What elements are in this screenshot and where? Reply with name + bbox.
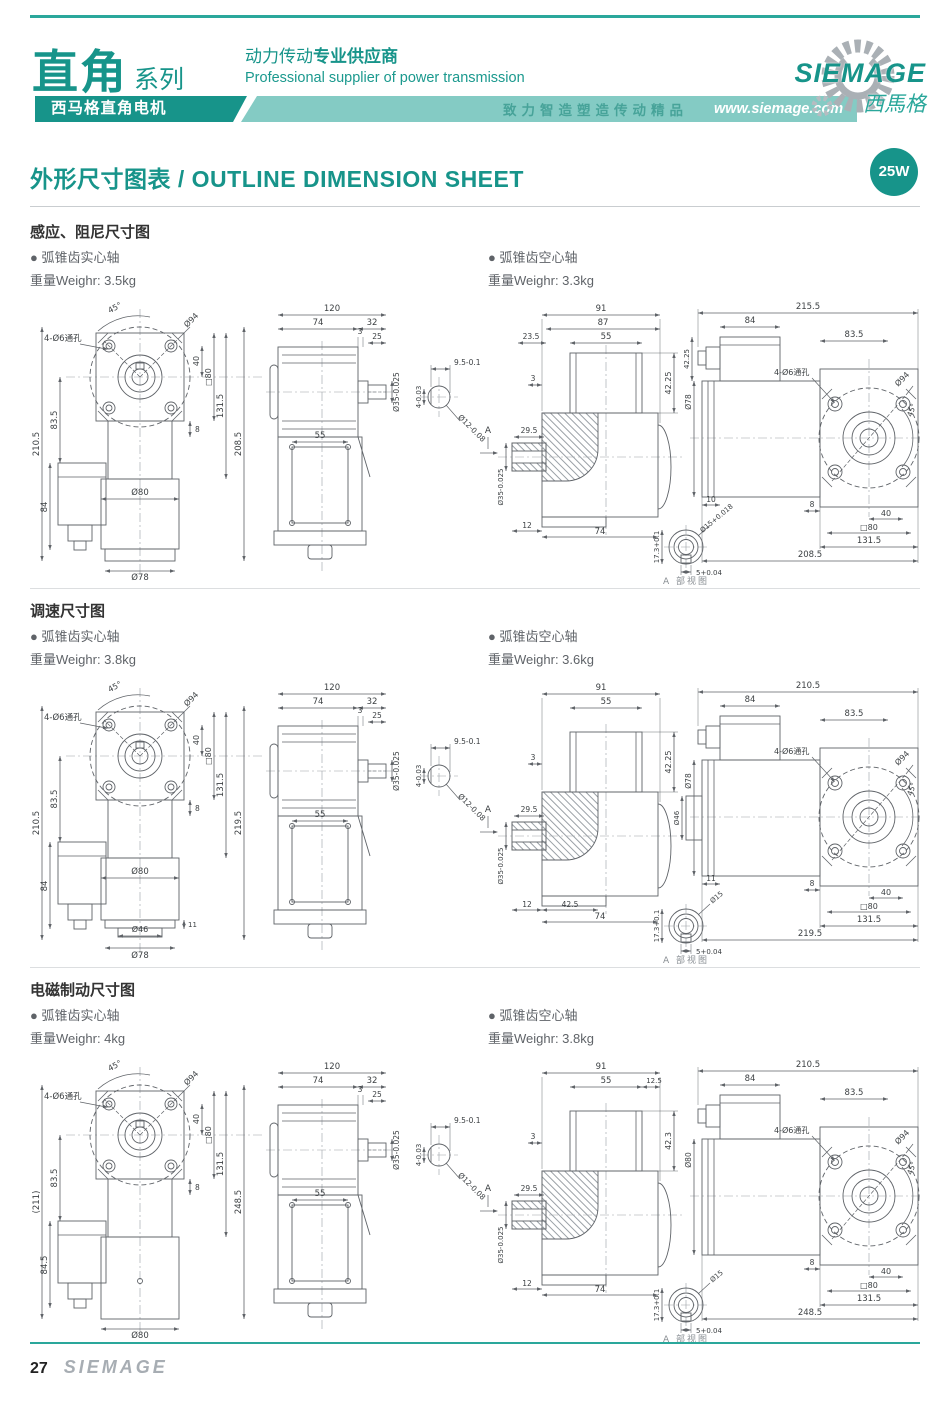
- dim-label: 208.5: [234, 432, 244, 456]
- dim-label: 131.5: [857, 915, 881, 925]
- tagline-en: Professional supplier of power transmiss…: [245, 70, 525, 86]
- variant-label: ● 弧锥齿实心轴: [30, 626, 450, 645]
- variant-weight: 重量Weighr: 3.8kg: [488, 1028, 908, 1047]
- dim-label: A: [485, 426, 492, 436]
- power-badge: 25W: [870, 148, 918, 196]
- dim-label: 74: [595, 527, 606, 537]
- dim-label: 45°: [905, 1160, 918, 1176]
- section-title: 调速尺寸图: [30, 600, 920, 621]
- dim-label: Ø94: [893, 1128, 912, 1147]
- variant-weight: 重量Weighr: 3.6kg: [488, 649, 908, 668]
- dim-label: 219.5: [234, 811, 244, 835]
- front-view: 210.583.584131.5219.540□80845°Ø944-Ø6通孔Ø…: [32, 679, 264, 961]
- dim-label: Ø35-0.025: [392, 1130, 401, 1170]
- variant-weight: 重量Weighr: 3.5kg: [30, 270, 450, 289]
- dim-label: 8: [810, 500, 815, 509]
- dim-label: 29.5: [521, 1184, 538, 1193]
- dim-label: 5+0.04: [696, 1327, 722, 1335]
- shaft-key-detail: 9.5-0.14-0.03Ø12-0.08: [415, 358, 487, 444]
- hollow-section-view: A915512.5342.329.5Ø35-0.0251274: [480, 1062, 684, 1297]
- dim-label: 87: [598, 318, 609, 328]
- dim-label: 84.5: [40, 1256, 50, 1275]
- dimension-drawing-row: 210.583.584131.5219.540□80845°Ø944-Ø6通孔Ø…: [30, 664, 920, 964]
- dim-label: 83.5: [845, 330, 864, 340]
- variant-hollow-shaft: ● 弧锥齿空心轴 重量Weighr: 3.6kg: [488, 626, 908, 668]
- dim-label: □80: [860, 523, 878, 532]
- dim-label: □80: [204, 368, 213, 386]
- shaft-end-detail-view: 17.3+0.1Ø155+0.04A 部视图: [653, 890, 725, 964]
- dim-label: Ø15: [709, 1269, 725, 1284]
- dim-label: A: [485, 1184, 492, 1194]
- dim-label: 25: [372, 1090, 382, 1099]
- dim-label: 12: [522, 900, 532, 909]
- dim-label: 40: [881, 1267, 891, 1276]
- dim-label: Ø46: [673, 810, 681, 825]
- dim-label: (211): [32, 1191, 42, 1214]
- dim-label: Ø94: [182, 690, 201, 709]
- footer-brand: SIEMAGE: [64, 1357, 168, 1378]
- dim-label: 131.5: [216, 1152, 226, 1176]
- dim-label: Ø35-0.025: [497, 469, 505, 506]
- dim-label: 25: [372, 332, 382, 341]
- dim-label: 40: [192, 356, 201, 366]
- series-brand: 直角系列: [32, 36, 184, 102]
- dim-label: 25: [372, 711, 382, 720]
- dim-label: 12: [522, 1279, 532, 1288]
- dim-label: 4-Ø6通孔: [774, 1125, 809, 1135]
- dim-label: 83.5: [50, 411, 60, 430]
- dim-label: 3: [358, 1085, 363, 1094]
- dim-label: 8: [195, 425, 200, 434]
- dim-label: 210.5: [796, 1060, 820, 1070]
- top-rule: [30, 15, 920, 18]
- dim-label: 17.3+0.1: [653, 1289, 661, 1322]
- banner-slogan: 致力智造塑造传动精品: [503, 99, 688, 119]
- sections: 感应、阻尼尺寸图 ● 弧锥齿实心轴 重量Weighr: 3.5kg ● 弧锥齿空…: [30, 210, 920, 1343]
- dim-label: 3: [531, 374, 536, 383]
- variant-label: ● 弧锥齿空心轴: [488, 626, 908, 645]
- dim-label: 84: [745, 695, 756, 705]
- dim-label: 3: [531, 753, 536, 762]
- tagline-cn: 动力传动专业供应商: [245, 42, 525, 67]
- dim-label: Ø94: [182, 311, 201, 330]
- dim-label: 10: [706, 495, 716, 504]
- dim-label: 3: [358, 327, 363, 336]
- dim-label: 4-0.03: [415, 386, 423, 409]
- dim-label: 40: [192, 735, 201, 745]
- variant-label: ● 弧锥齿空心轴: [488, 1005, 908, 1024]
- front-view: 210.583.584131.5208.540□80845°Ø944-Ø6通孔Ø…: [32, 300, 264, 583]
- dim-label: 4-Ø6通孔: [44, 712, 82, 723]
- variant-solid-shaft: ● 弧锥齿实心轴 重量Weighr: 4kg: [30, 1005, 450, 1047]
- dim-label: 74: [595, 912, 606, 922]
- dim-label: Ø12-0.08: [456, 1171, 487, 1202]
- dim-label: 131.5: [216, 773, 226, 797]
- dim-label: 17.3+0.1: [653, 910, 661, 943]
- dim-label: 11: [188, 921, 197, 929]
- dim-label: 8: [810, 1258, 815, 1267]
- dim-label: 8: [195, 1183, 200, 1192]
- dim-label: 45°: [905, 402, 918, 418]
- dim-label: 9.5-0.1: [454, 737, 481, 746]
- dim-label: 42.5: [562, 900, 579, 909]
- dim-label: 40: [881, 888, 891, 897]
- dim-label: 120: [324, 683, 340, 693]
- variant-solid-shaft: ● 弧锥齿实心轴 重量Weighr: 3.5kg: [30, 247, 450, 289]
- dim-label: Ø80: [131, 1330, 149, 1341]
- dim-label: 74: [313, 318, 324, 328]
- dim-label: Ø46: [132, 924, 148, 934]
- logo-cn: 西馬格: [863, 88, 926, 118]
- page-number: 27: [30, 1360, 48, 1378]
- dim-label: 83.5: [845, 709, 864, 719]
- dim-label: 208.5: [798, 550, 822, 560]
- company-logo: SIEMAGE 西馬格: [784, 32, 926, 132]
- dim-label: 42.25: [683, 349, 691, 369]
- variant-label: ● 弧锥齿空心轴: [488, 247, 908, 266]
- dim-label: Ø15: [709, 890, 725, 905]
- dim-label: 84: [40, 502, 50, 513]
- dim-label: Ø78: [131, 572, 149, 583]
- variant-weight: 重量Weighr: 3.8kg: [30, 649, 450, 668]
- dim-label: 3: [358, 706, 363, 715]
- motor-side-view: 45°Ø944-Ø6通孔Ø78Ø46210.58483.511840□80131…: [673, 681, 920, 942]
- dim-label: 12: [522, 521, 532, 530]
- motor-side-view: 45°Ø944-Ø6通孔Ø80210.58483.5840□80131.5248…: [684, 1060, 920, 1321]
- tagline-cn-normal: 动力传动: [245, 47, 313, 66]
- motor-side-view: 45°Ø944-Ø6通孔Ø7842.25215.58483.510840□801…: [683, 302, 920, 563]
- dim-label: 74: [313, 697, 324, 707]
- dim-label: 131.5: [857, 1294, 881, 1304]
- brand-banner: 西马格直角电机 致力智造塑造传动精品 www.siemage.com: [35, 96, 857, 122]
- variant-headers: ● 弧锥齿实心轴 重量Weighr: 3.5kg ● 弧锥齿空心轴 重量Weig…: [30, 247, 920, 285]
- dim-label: Ø78: [684, 773, 693, 789]
- variant-hollow-shaft: ● 弧锥齿空心轴 重量Weighr: 3.8kg: [488, 1005, 908, 1047]
- banner-strip: 致力智造塑造传动精品 www.siemage.com: [241, 96, 857, 122]
- dim-label: □80: [860, 1281, 878, 1290]
- variant-hollow-shaft: ● 弧锥齿空心轴 重量Weighr: 3.3kg: [488, 247, 908, 289]
- dim-label: Ø15+0.018: [699, 502, 735, 534]
- dim-label: 45°: [106, 1058, 123, 1073]
- dim-label: 83.5: [50, 790, 60, 809]
- dim-label: Ø12-0.08: [456, 413, 487, 444]
- variant-label: ● 弧锥齿实心轴: [30, 1005, 450, 1024]
- variant-headers: ● 弧锥齿实心轴 重量Weighr: 3.8kg ● 弧锥齿空心轴 重量Weig…: [30, 626, 920, 664]
- shaft-key-detail: 9.5-0.14-0.03Ø12-0.08: [415, 1116, 487, 1202]
- dim-label: 248.5: [234, 1190, 244, 1214]
- hollow-section-view: A9155342.2529.5Ø35-0.0251242.574: [480, 683, 684, 924]
- footer: 27 SIEMAGE: [30, 1342, 920, 1378]
- dim-label: 29.5: [521, 805, 538, 814]
- dim-label: 8: [810, 879, 815, 888]
- dim-label: 55: [315, 431, 326, 441]
- dim-label: 42.3: [664, 1132, 673, 1150]
- section-title: 电磁制动尺寸图: [30, 979, 920, 1000]
- dim-label: □80: [860, 902, 878, 911]
- banner-product-label: 西马格直角电机: [35, 96, 255, 122]
- shaft-end-detail-view: 17.3+0.1Ø15+0.0185+0.04A 部视图: [653, 502, 735, 585]
- dim-label: 248.5: [798, 1308, 822, 1318]
- dim-label: 32: [367, 697, 378, 707]
- dim-label: 3: [531, 1132, 536, 1141]
- dim-label: 131.5: [216, 394, 226, 418]
- dim-label: Ø35-0.025: [497, 1227, 505, 1264]
- dim-label: 83.5: [845, 1088, 864, 1098]
- dim-label: 55: [601, 1076, 612, 1086]
- section-induction: 感应、阻尼尺寸图 ● 弧锥齿实心轴 重量Weighr: 3.5kg ● 弧锥齿空…: [30, 210, 920, 585]
- logo-wordmark: SIEMAGE: [794, 58, 926, 89]
- dim-label: 23.5: [523, 332, 540, 341]
- dim-label: 55: [601, 697, 612, 707]
- dim-label: Ø12-0.08: [456, 792, 487, 823]
- dim-label: 215.5: [796, 302, 820, 312]
- variant-weight: 重量Weighr: 4kg: [30, 1028, 450, 1047]
- dim-label: 45°: [106, 679, 123, 694]
- variant-headers: ● 弧锥齿实心轴 重量Weighr: 4kg ● 弧锥齿空心轴 重量Weighr…: [30, 1005, 920, 1043]
- dim-label: 55: [315, 1189, 326, 1199]
- dim-label: 83.5: [50, 1169, 60, 1188]
- dim-label: 8: [195, 804, 200, 813]
- dim-label: 40: [881, 509, 891, 518]
- dim-label: Ø78: [131, 950, 149, 961]
- dim-label: 4-0.03: [415, 765, 423, 788]
- dim-label: □80: [204, 747, 213, 765]
- dim-label: Ø35-0.025: [392, 372, 401, 412]
- page-title: 外形尺寸图表 / OUTLINE DIMENSION SHEET: [30, 148, 920, 194]
- dim-label: 84: [745, 1074, 756, 1084]
- section-speed-regulation: 调速尺寸图 ● 弧锥齿实心轴 重量Weighr: 3.8kg ● 弧锥齿空心轴 …: [30, 588, 920, 964]
- variant-weight: 重量Weighr: 3.3kg: [488, 270, 908, 289]
- dim-label: 4-Ø6通孔: [774, 367, 809, 377]
- title-divider: [30, 206, 920, 207]
- dim-label: 84: [40, 881, 50, 892]
- dim-label: 210.5: [32, 432, 42, 456]
- shaft-key-detail: 9.5-0.14-0.03Ø12-0.08: [415, 737, 487, 823]
- dim-label: Ø78: [684, 394, 693, 410]
- dim-label: 210.5: [796, 681, 820, 691]
- dim-label: 84: [745, 316, 756, 326]
- dim-label: 4-0.03: [415, 1144, 423, 1167]
- series-name: 直角: [32, 46, 128, 98]
- title-row: 外形尺寸图表 / OUTLINE DIMENSION SHEET 25W: [30, 148, 920, 202]
- dim-label: Ø94: [893, 749, 912, 768]
- dim-label: 5+0.04: [696, 948, 722, 956]
- dim-label: 42.25: [664, 372, 673, 395]
- dim-label: 91: [596, 683, 607, 693]
- dim-label: 219.5: [798, 929, 822, 939]
- dim-label: Ø80: [684, 1152, 693, 1168]
- dimension-drawing-row: 210.583.584131.5208.540□80845°Ø944-Ø6通孔Ø…: [30, 285, 920, 585]
- dim-label: 4-Ø6通孔: [44, 333, 82, 344]
- dim-label: 40: [192, 1114, 201, 1124]
- side-view: 1207432325Ø35-0.02555: [266, 304, 401, 571]
- shaft-end-detail-view: 17.3+0.1Ø155+0.04A 部视图: [653, 1269, 725, 1343]
- dim-label: 42.25: [664, 751, 673, 774]
- dim-label: 9.5-0.1: [454, 358, 481, 367]
- dim-label: 74: [313, 1076, 324, 1086]
- detail-view-caption: A 部视图: [663, 575, 709, 585]
- page: 直角系列 动力传动专业供应商 Professional supplier of …: [0, 0, 950, 1404]
- dim-label: Ø80: [131, 866, 149, 877]
- side-view: 1207432325Ø35-0.02555: [266, 1062, 401, 1329]
- dim-label: 91: [596, 304, 607, 314]
- front-view: (211)83.584.5131.5248.540□80845°Ø944-Ø6通…: [32, 1058, 264, 1341]
- dim-label: A: [485, 805, 492, 815]
- dim-label: 17.3+0.1: [653, 531, 661, 564]
- dim-label: Ø80: [131, 487, 149, 498]
- hollow-section-view: A918723.555342.2529.5Ø35-0.0251274: [480, 304, 684, 539]
- dim-label: 4-Ø6通孔: [44, 1091, 82, 1102]
- dim-label: 29.5: [521, 426, 538, 435]
- dim-label: 45°: [905, 781, 918, 797]
- dim-label: 32: [367, 318, 378, 328]
- dim-label: 74: [595, 1285, 606, 1295]
- dim-label: 91: [596, 1062, 607, 1072]
- section-title: 感应、阻尼尺寸图: [30, 221, 920, 242]
- dim-label: 32: [367, 1076, 378, 1086]
- dimension-drawing-row: (211)83.584.5131.5248.540□80845°Ø944-Ø6通…: [30, 1043, 920, 1343]
- section-electromagnetic-brake: 电磁制动尺寸图 ● 弧锥齿实心轴 重量Weighr: 4kg ● 弧锥齿空心轴 …: [30, 967, 920, 1343]
- dim-label: 120: [324, 1062, 340, 1072]
- dim-label: 131.5: [857, 536, 881, 546]
- dim-label: 4-Ø6通孔: [774, 746, 809, 756]
- dim-label: 12.5: [646, 1077, 662, 1085]
- variant-solid-shaft: ● 弧锥齿实心轴 重量Weighr: 3.8kg: [30, 626, 450, 668]
- tagline-cn-bold: 专业供应商: [313, 47, 398, 66]
- dim-label: □80: [204, 1126, 213, 1144]
- dim-label: Ø35-0.025: [392, 751, 401, 791]
- dim-label: 45°: [106, 300, 123, 315]
- dim-label: Ø94: [893, 370, 912, 389]
- dim-label: 11: [706, 874, 716, 883]
- dim-label: 55: [601, 332, 612, 342]
- dim-label: Ø35-0.025: [497, 848, 505, 885]
- variant-label: ● 弧锥齿实心轴: [30, 247, 450, 266]
- dim-label: 5+0.04: [696, 569, 722, 577]
- dim-label: Ø94: [182, 1069, 201, 1088]
- dim-label: 9.5-0.1: [454, 1116, 481, 1125]
- series-suffix: 系列: [134, 66, 184, 94]
- dim-label: 210.5: [32, 811, 42, 835]
- dim-label: 55: [315, 810, 326, 820]
- side-view: 1207432325Ø35-0.02555: [266, 683, 401, 950]
- detail-view-caption: A 部视图: [663, 954, 709, 964]
- tagline: 动力传动专业供应商 Professional supplier of power…: [245, 42, 525, 86]
- dim-label: 120: [324, 304, 340, 314]
